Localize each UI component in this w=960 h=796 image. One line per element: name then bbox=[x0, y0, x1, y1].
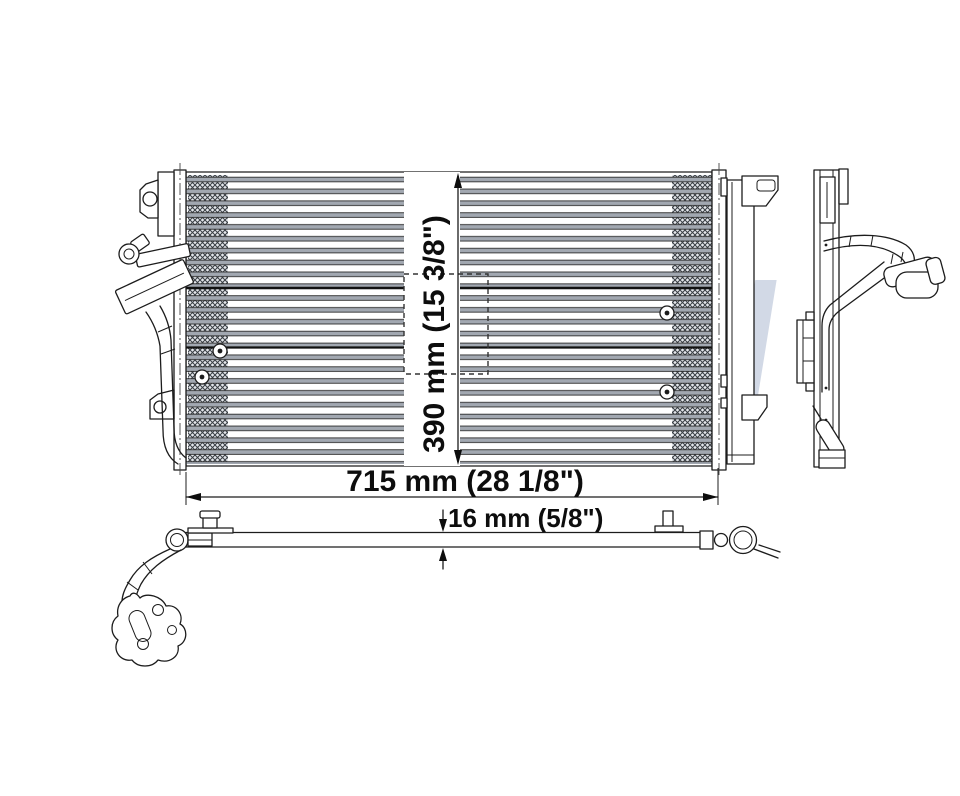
bracket-hole bbox=[154, 401, 166, 413]
width-dimension-label: 715 mm (28 1/8") bbox=[346, 465, 584, 498]
width-dimension: 715 mm (28 1/8") bbox=[186, 465, 718, 505]
top-right-bracket bbox=[742, 176, 778, 206]
bottom-left-fitting bbox=[112, 511, 233, 666]
depth-dimension: 16 mm (5/8") bbox=[439, 503, 603, 569]
condenser-technical-drawing: REACH bbox=[0, 0, 960, 796]
bottom-strip bbox=[186, 533, 700, 548]
arrow-down-icon bbox=[439, 519, 447, 532]
right-header-tank bbox=[712, 163, 726, 477]
side-bracket bbox=[797, 312, 814, 391]
hose-eye-outer bbox=[119, 244, 139, 264]
arrow-right-icon bbox=[703, 493, 718, 501]
bottom-view bbox=[112, 511, 780, 666]
left-header-tank bbox=[174, 163, 186, 477]
top-left-bracket bbox=[140, 172, 174, 236]
bolt-head bbox=[200, 511, 220, 518]
arrow-up-icon bbox=[439, 548, 447, 561]
height-dimension-label: 390 mm (15 3/8") bbox=[418, 215, 451, 453]
condenser-drawing-page: REACH bbox=[0, 0, 960, 796]
side-top-tab bbox=[839, 169, 848, 204]
mount-plate bbox=[188, 528, 233, 533]
pipe-run-outer bbox=[122, 549, 170, 602]
arrow-left-icon bbox=[186, 493, 201, 501]
bottom-right-fitting bbox=[700, 527, 780, 559]
side-view bbox=[797, 169, 946, 468]
bracket-hole bbox=[143, 192, 157, 206]
manifold-block bbox=[112, 593, 186, 666]
bottom-bracket-tab bbox=[655, 511, 683, 532]
depth-dimension-label: 16 mm (5/8") bbox=[448, 503, 603, 533]
